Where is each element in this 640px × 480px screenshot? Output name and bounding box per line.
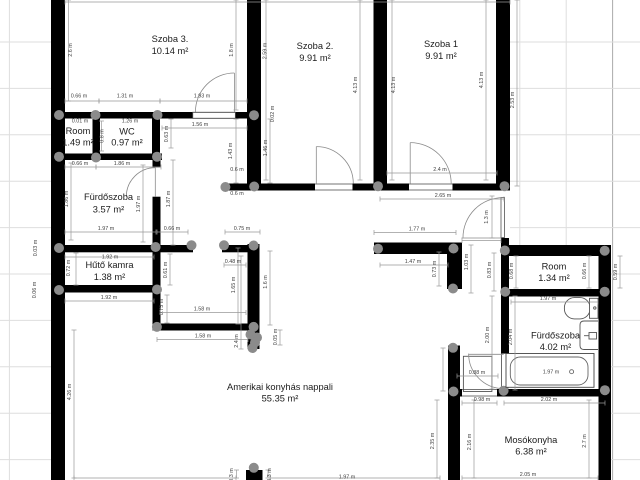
svg-text:0.68 m: 0.68 m xyxy=(509,262,515,279)
svg-text:Fürdőszoba: Fürdőszoba xyxy=(84,192,134,202)
svg-text:1.3 m: 1.3 m xyxy=(484,210,490,224)
svg-text:4.02 m²: 4.02 m² xyxy=(540,342,572,352)
svg-text:4.13 m: 4.13 m xyxy=(479,71,485,88)
svg-text:1.03 m: 1.03 m xyxy=(464,253,470,270)
svg-text:1.43 m: 1.43 m xyxy=(228,142,234,159)
svg-text:Szoba 1: Szoba 1 xyxy=(424,39,458,49)
svg-text:2.4 m: 2.4 m xyxy=(234,334,240,348)
svg-text:Room: Room xyxy=(66,126,91,136)
svg-text:1.92 m: 1.92 m xyxy=(102,255,119,261)
svg-text:WC: WC xyxy=(119,127,135,137)
svg-text:1.58 m: 1.58 m xyxy=(194,307,211,313)
svg-text:1.86 m: 1.86 m xyxy=(114,161,131,167)
svg-text:1.77 m: 1.77 m xyxy=(409,227,426,233)
svg-text:9.91 m²: 9.91 m² xyxy=(425,51,457,61)
svg-text:0.6 m: 0.6 m xyxy=(230,191,244,197)
svg-text:55.35 m²: 55.35 m² xyxy=(262,394,299,404)
svg-text:0.01 m: 0.01 m xyxy=(72,119,89,125)
svg-text:1.49 m²: 1.49 m² xyxy=(62,138,94,148)
svg-text:2.7 m: 2.7 m xyxy=(582,434,588,448)
svg-text:1.97 m: 1.97 m xyxy=(136,195,142,212)
svg-text:1.31 m: 1.31 m xyxy=(117,94,134,100)
svg-text:2.4 m: 2.4 m xyxy=(433,167,447,173)
svg-text:9.91 m²: 9.91 m² xyxy=(299,53,331,63)
svg-text:1.6 m: 1.6 m xyxy=(263,275,269,289)
svg-text:3.57 m²: 3.57 m² xyxy=(93,205,125,215)
svg-text:Fürdőszoba: Fürdőszoba xyxy=(531,331,581,341)
svg-text:Mosókonyha: Mosókonyha xyxy=(505,435,559,445)
svg-text:2.16 m: 2.16 m xyxy=(467,433,473,450)
svg-text:1.97 m: 1.97 m xyxy=(98,226,115,232)
svg-text:0.98 m: 0.98 m xyxy=(474,397,491,403)
svg-text:Hűtő kamra: Hűtő kamra xyxy=(85,260,134,270)
svg-text:1.56 m: 1.56 m xyxy=(192,122,209,128)
svg-text:0.48 m: 0.48 m xyxy=(225,259,242,265)
svg-text:2.59 m: 2.59 m xyxy=(263,42,269,59)
svg-text:0.3 m: 0.3 m xyxy=(267,468,273,480)
svg-text:0.63 m: 0.63 m xyxy=(164,125,170,142)
svg-text:1.47 m: 1.47 m xyxy=(405,259,422,265)
svg-text:0.88 m: 0.88 m xyxy=(469,370,486,376)
svg-text:2.6 m: 2.6 m xyxy=(68,43,74,57)
svg-text:4.13 m: 4.13 m xyxy=(391,76,397,93)
svg-text:2.65 m: 2.65 m xyxy=(435,193,452,199)
svg-text:0.73 m: 0.73 m xyxy=(432,260,438,277)
svg-text:1.65 m: 1.65 m xyxy=(231,276,237,293)
svg-text:0.66 m: 0.66 m xyxy=(71,94,88,100)
svg-text:0.72 m: 0.72 m xyxy=(66,259,72,276)
svg-text:0.97 m²: 0.97 m² xyxy=(111,138,143,148)
svg-text:1.34 m²: 1.34 m² xyxy=(538,273,570,283)
svg-text:0.05 m: 0.05 m xyxy=(273,328,279,345)
svg-text:1.87 m: 1.87 m xyxy=(166,190,172,207)
svg-text:0.02 m: 0.02 m xyxy=(270,105,276,122)
svg-text:0.61 m: 0.61 m xyxy=(163,261,169,278)
svg-text:2.35 m: 2.35 m xyxy=(430,432,436,449)
svg-text:2.02 m: 2.02 m xyxy=(541,397,558,403)
svg-text:Szoba 3.: Szoba 3. xyxy=(152,34,189,44)
svg-text:Amerikai konyhás nappali: Amerikai konyhás nappali xyxy=(227,382,333,392)
svg-text:1.46 m: 1.46 m xyxy=(263,139,269,156)
svg-text:4.13 m: 4.13 m xyxy=(353,76,359,93)
svg-text:Room: Room xyxy=(542,262,567,272)
svg-text:0.66 m: 0.66 m xyxy=(164,226,181,232)
svg-text:0.75 m: 0.75 m xyxy=(159,298,165,315)
svg-text:1.86 m: 1.86 m xyxy=(64,190,70,207)
svg-text:1.97 m: 1.97 m xyxy=(543,370,560,376)
svg-text:0.8 m: 0.8 m xyxy=(100,129,106,143)
svg-text:1.26 m: 1.26 m xyxy=(122,119,139,125)
svg-text:0.75 m: 0.75 m xyxy=(234,226,251,232)
svg-text:0.66 m: 0.66 m xyxy=(582,262,588,279)
svg-text:1.38 m²: 1.38 m² xyxy=(94,272,126,282)
svg-text:6.38 m²: 6.38 m² xyxy=(515,447,547,457)
svg-text:10.14 m²: 10.14 m² xyxy=(152,46,189,56)
svg-text:0.6 m: 0.6 m xyxy=(230,167,244,173)
svg-text:1.8 m: 1.8 m xyxy=(229,43,235,57)
svg-text:1.97 m: 1.97 m xyxy=(339,475,356,480)
svg-text:0.66 m: 0.66 m xyxy=(72,161,89,167)
svg-text:2.53 m: 2.53 m xyxy=(510,91,516,108)
svg-text:2.00 m: 2.00 m xyxy=(485,326,491,343)
svg-text:1.92 m: 1.92 m xyxy=(101,295,118,301)
svg-text:4.26 m: 4.26 m xyxy=(67,383,73,400)
svg-text:Szoba 2.: Szoba 2. xyxy=(297,41,334,51)
svg-text:0.59 m: 0.59 m xyxy=(613,263,619,280)
svg-text:0.06 m: 0.06 m xyxy=(32,281,38,298)
svg-text:1.93 m: 1.93 m xyxy=(194,94,211,100)
svg-text:0.83 m: 0.83 m xyxy=(487,261,493,278)
svg-text:2.04 m: 2.04 m xyxy=(508,328,514,345)
svg-text:0.3 m: 0.3 m xyxy=(229,468,235,480)
svg-text:1.58 m: 1.58 m xyxy=(195,334,212,340)
svg-text:1.97 m: 1.97 m xyxy=(540,296,557,302)
svg-text:2.05 m: 2.05 m xyxy=(520,472,537,478)
svg-text:0.03 m: 0.03 m xyxy=(33,239,39,256)
